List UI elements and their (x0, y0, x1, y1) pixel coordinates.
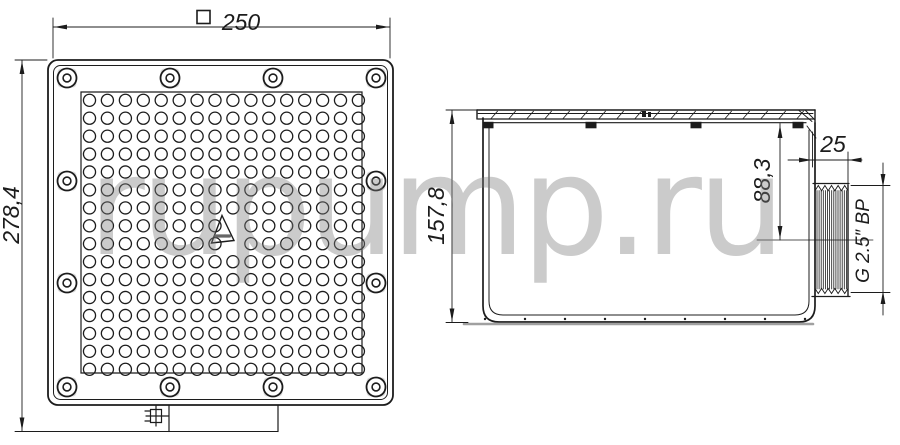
technical-drawing-page: rupump.ru (0, 0, 900, 445)
dim-width-label: 250 (221, 9, 261, 35)
drawing-canvas: 250 278,4 157,8 88,3 25 G 2.5″ BP (0, 0, 900, 445)
dim-height-label: 278,4 (0, 186, 24, 245)
lid-hatch-ticks (491, 111, 804, 118)
bottom-sump-outline (169, 406, 278, 432)
top-view (48, 60, 393, 432)
dim-thread-length-label: 25 (819, 131, 846, 157)
side-lid (477, 110, 815, 128)
base-dots (484, 318, 806, 320)
side-view (464, 110, 873, 324)
dim-outlet-offset-label: 88,3 (749, 158, 775, 203)
side-body (464, 118, 816, 324)
thread-spec-label: G 2.5″ BP (853, 199, 874, 283)
square-symbol (197, 11, 210, 24)
drain-plug-symbol (145, 406, 169, 426)
dim-side-height-label: 157,8 (423, 187, 449, 245)
dimension-lines (15, 18, 890, 432)
grate-field-border (81, 92, 362, 373)
